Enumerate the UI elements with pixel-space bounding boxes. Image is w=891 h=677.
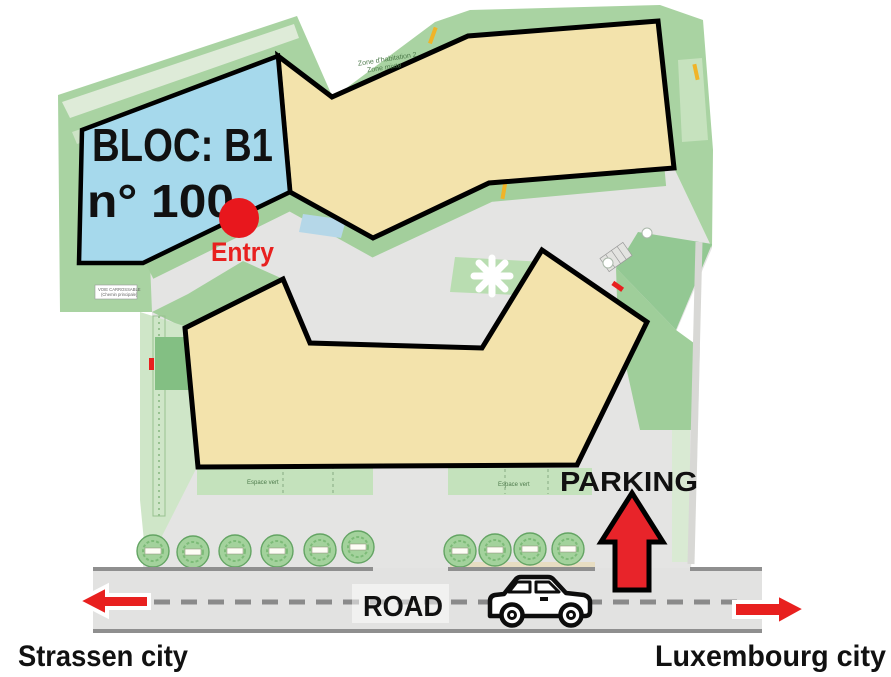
site-plan-svg: Espace vert Espace vert BLOC: B1 n° 100 …	[0, 0, 891, 677]
tree-icon	[552, 533, 584, 565]
roadway-note-line2: (Chemin principale)	[101, 292, 138, 297]
left-city-label: Strassen city	[18, 640, 188, 673]
tree-icon	[304, 534, 336, 566]
small-tree-icon	[603, 258, 613, 268]
green-band-bottom-left	[197, 465, 373, 495]
red-mark	[149, 358, 154, 370]
tree-icon	[137, 535, 169, 567]
tree-icon	[444, 535, 476, 567]
tree-icon	[177, 536, 209, 568]
bloc-label-line1: BLOC: B1	[92, 119, 273, 171]
tree-icon	[342, 531, 374, 563]
site-plan-map: Espace vert Espace vert BLOC: B1 n° 100 …	[0, 0, 891, 677]
tree-icon	[479, 534, 511, 566]
small-tree-icon	[642, 228, 652, 238]
green-space-label: Espace vert	[498, 482, 530, 488]
tree-icon	[261, 535, 293, 567]
right-city-label: Luxembourg city	[655, 640, 886, 673]
parking-label: PARKING	[560, 466, 698, 497]
snowflake-tree-icon	[474, 258, 510, 294]
road-label: ROAD	[363, 591, 443, 623]
bloc-label-line2: n° 100	[87, 175, 234, 227]
tree-icon	[514, 533, 546, 565]
entry-marker	[219, 198, 259, 238]
tree-icon	[219, 535, 251, 567]
roadway-note: VOIE CARROSSABLE (Chemin principale)	[95, 285, 141, 299]
green-space-label: Espace vert	[247, 480, 279, 486]
entry-label: Entry	[211, 237, 274, 267]
